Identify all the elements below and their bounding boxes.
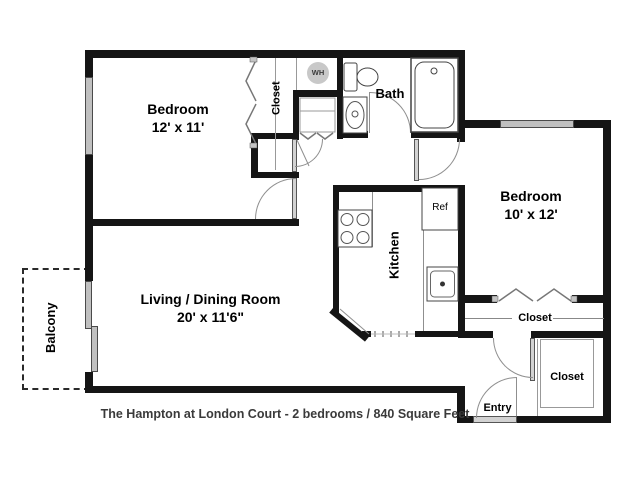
door-jamb bbox=[492, 296, 498, 302]
bedroom2-name-label: Bedroom bbox=[481, 188, 581, 204]
door-leaf-line bbox=[297, 140, 309, 166]
balcony-label: Balcony bbox=[42, 297, 59, 359]
bifold-door-icon bbox=[499, 289, 533, 301]
bedroom1-dims-label: 12' x 11' bbox=[128, 119, 228, 135]
water-heater-icon: WH bbox=[307, 62, 329, 84]
bath-sink-icon bbox=[346, 102, 364, 129]
bedroom1-closet-label: Closet bbox=[269, 70, 284, 126]
stove-burner bbox=[341, 214, 353, 226]
pantry-shelf bbox=[300, 98, 335, 132]
kitchen-sink-drain bbox=[440, 282, 445, 287]
door-jamb bbox=[250, 143, 257, 148]
living-room-dims-label: 20' x 11'6" bbox=[133, 309, 288, 325]
stove-burner bbox=[357, 232, 369, 244]
bifold-door-icon bbox=[317, 133, 333, 139]
floor-plan: Bedroom 12' x 11' Bedroom 10' x 12' Livi… bbox=[0, 0, 640, 480]
bifold-door-icon bbox=[537, 289, 571, 301]
bedroom2-dims-label: 10' x 12' bbox=[481, 206, 581, 222]
bedroom1-name-label: Bedroom bbox=[128, 101, 228, 117]
bath-label: Bath bbox=[370, 86, 410, 101]
bathtub-drain bbox=[431, 68, 437, 74]
kitchen-label: Kitchen bbox=[386, 213, 402, 298]
living-room-name-label: Living / Dining Room bbox=[133, 291, 288, 307]
counter-edge bbox=[340, 309, 369, 334]
floor-plan-caption: The Hampton at London Court - 2 bedrooms… bbox=[30, 407, 540, 421]
toilet-icon bbox=[344, 63, 357, 91]
hall-closet-label: Closet bbox=[500, 312, 570, 324]
bifold-door-icon bbox=[300, 133, 316, 139]
toilet-icon bbox=[357, 68, 378, 86]
stove-burner bbox=[357, 214, 369, 226]
refrigerator-label: Ref bbox=[426, 202, 454, 213]
bifold-door-icon bbox=[246, 104, 256, 144]
entry-closet-label: Closet bbox=[532, 371, 602, 383]
door-jamb bbox=[571, 296, 577, 302]
door-jamb bbox=[250, 57, 257, 62]
bifold-door-icon bbox=[246, 60, 256, 101]
stove-burner bbox=[341, 232, 353, 244]
